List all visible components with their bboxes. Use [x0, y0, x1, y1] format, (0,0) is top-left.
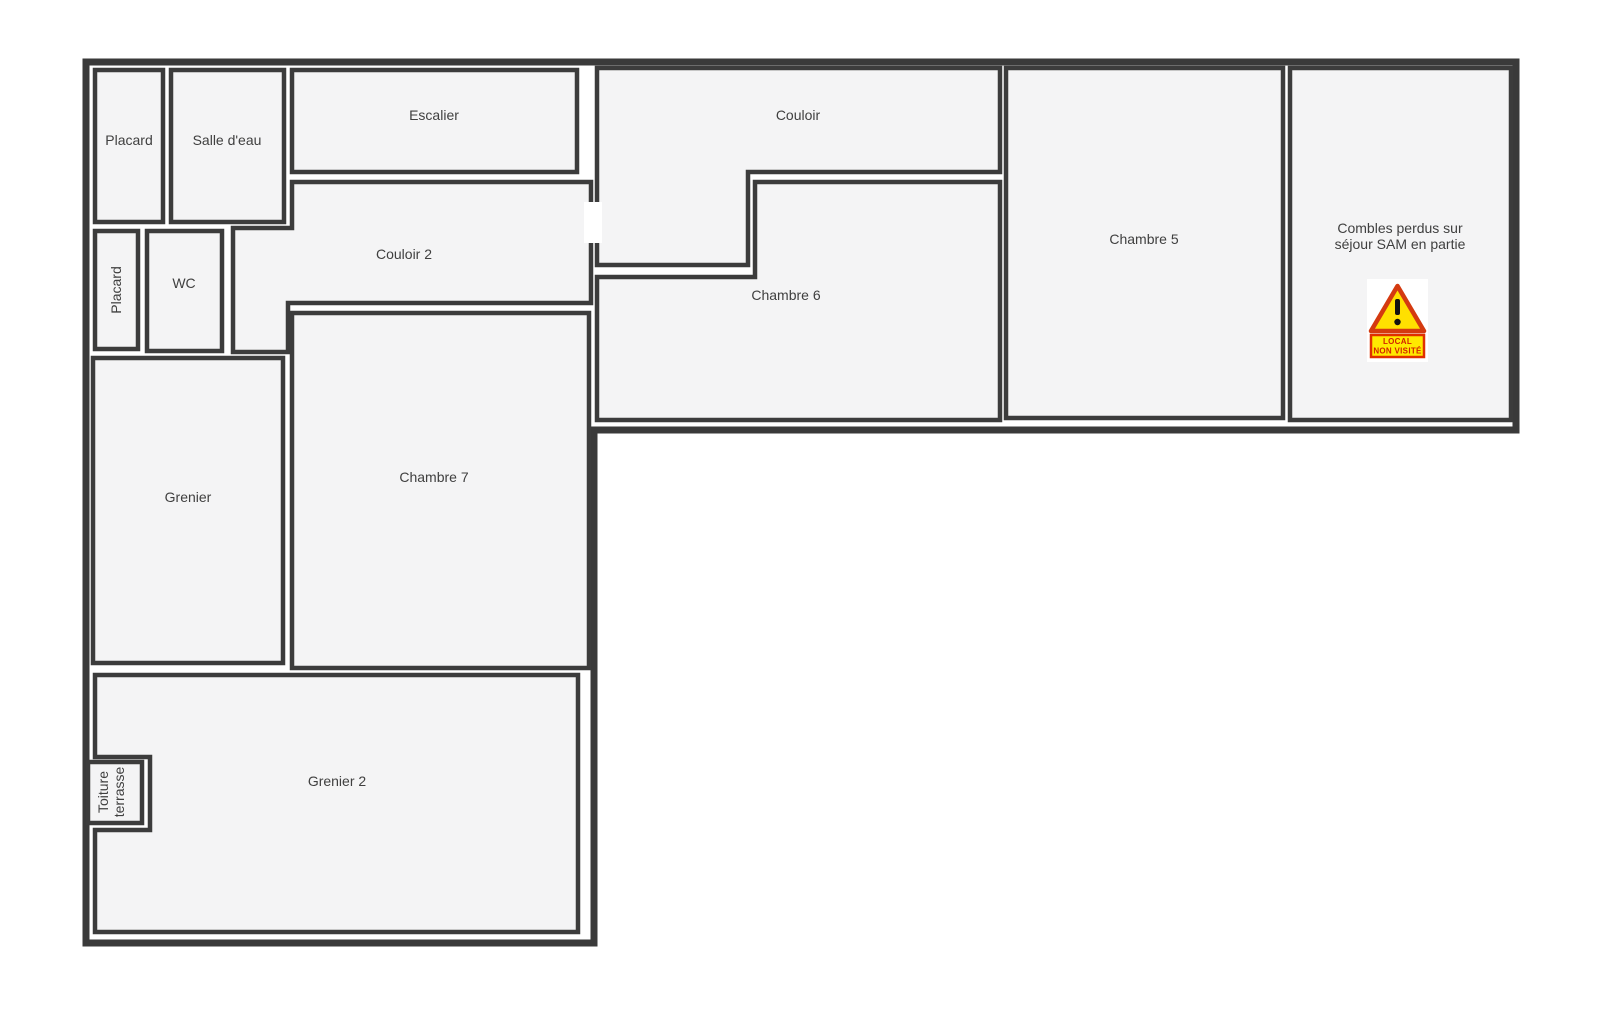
room-couloir-label: Couloir	[776, 107, 821, 123]
room-chambre-7	[292, 313, 589, 668]
warning-sign-label-line1: LOCAL	[1383, 337, 1412, 346]
floorplan-svg: Placard Salle d'eau Escalier Couloir 2 P…	[0, 0, 1600, 1021]
room-wc	[147, 231, 222, 351]
warning-exclamation-dot	[1394, 319, 1400, 325]
room-salle-deau-label: Salle d'eau	[193, 132, 262, 148]
room-grenier-2	[95, 675, 578, 932]
room-combles-label-line1: Combles perdus sur	[1337, 220, 1463, 236]
room-toiture-terrasse-label-line2: terrasse	[111, 767, 127, 818]
warning-sign-label-line2: NON VISITÉ	[1373, 347, 1422, 356]
door-opening	[584, 202, 602, 243]
room-wc-label: WC	[172, 275, 195, 291]
room-grenier-2-label: Grenier 2	[308, 773, 367, 789]
room-combles-label-line2: séjour SAM en partie	[1335, 236, 1466, 252]
room-grenier	[93, 358, 283, 663]
room-placard-side-label: Placard	[108, 266, 124, 313]
room-chambre-7-label: Chambre 7	[399, 469, 468, 485]
room-placard-top-label: Placard	[105, 132, 152, 148]
room-grenier-label: Grenier	[165, 489, 212, 505]
warning-icon: LOCAL NON VISITÉ	[1367, 279, 1428, 362]
room-couloir-2-label: Couloir 2	[376, 246, 432, 262]
warning-exclamation-bar	[1395, 299, 1400, 315]
room-toiture-terrasse-label-line1: Toiture	[95, 771, 111, 813]
room-escalier-label: Escalier	[409, 107, 459, 123]
room-chambre-6-label: Chambre 6	[751, 287, 820, 303]
floorplan-page: Placard Salle d'eau Escalier Couloir 2 P…	[0, 0, 1600, 1021]
room-chambre-5-label: Chambre 5	[1109, 231, 1178, 247]
